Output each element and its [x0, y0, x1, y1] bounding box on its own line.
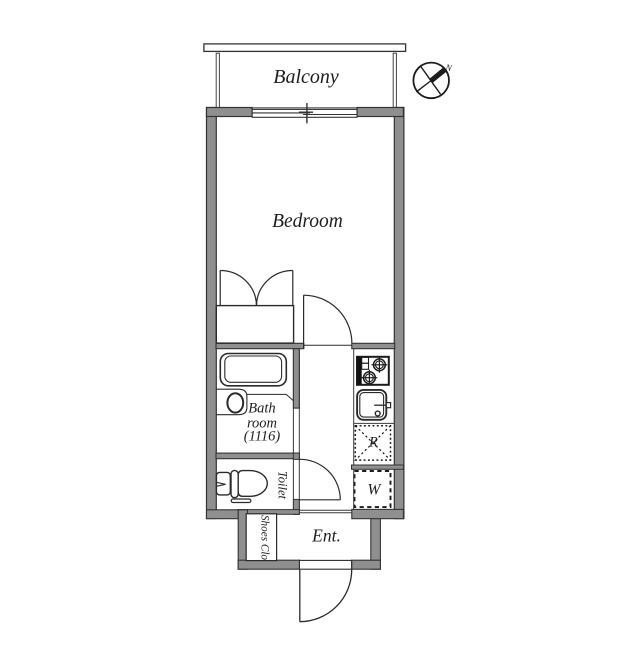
svg-text:Bath: Bath: [248, 401, 275, 417]
svg-text:(1116): (1116): [244, 429, 281, 445]
svg-text:Shoes Clo: Shoes Clo: [259, 515, 271, 560]
svg-text:Bedroom: Bedroom: [272, 211, 343, 232]
svg-text:Ent.: Ent.: [311, 525, 341, 545]
svg-text:Toilet: Toilet: [276, 471, 290, 500]
svg-text:W: W: [368, 482, 383, 499]
svg-text:Balcony: Balcony: [273, 66, 339, 88]
svg-text:R: R: [368, 434, 378, 450]
